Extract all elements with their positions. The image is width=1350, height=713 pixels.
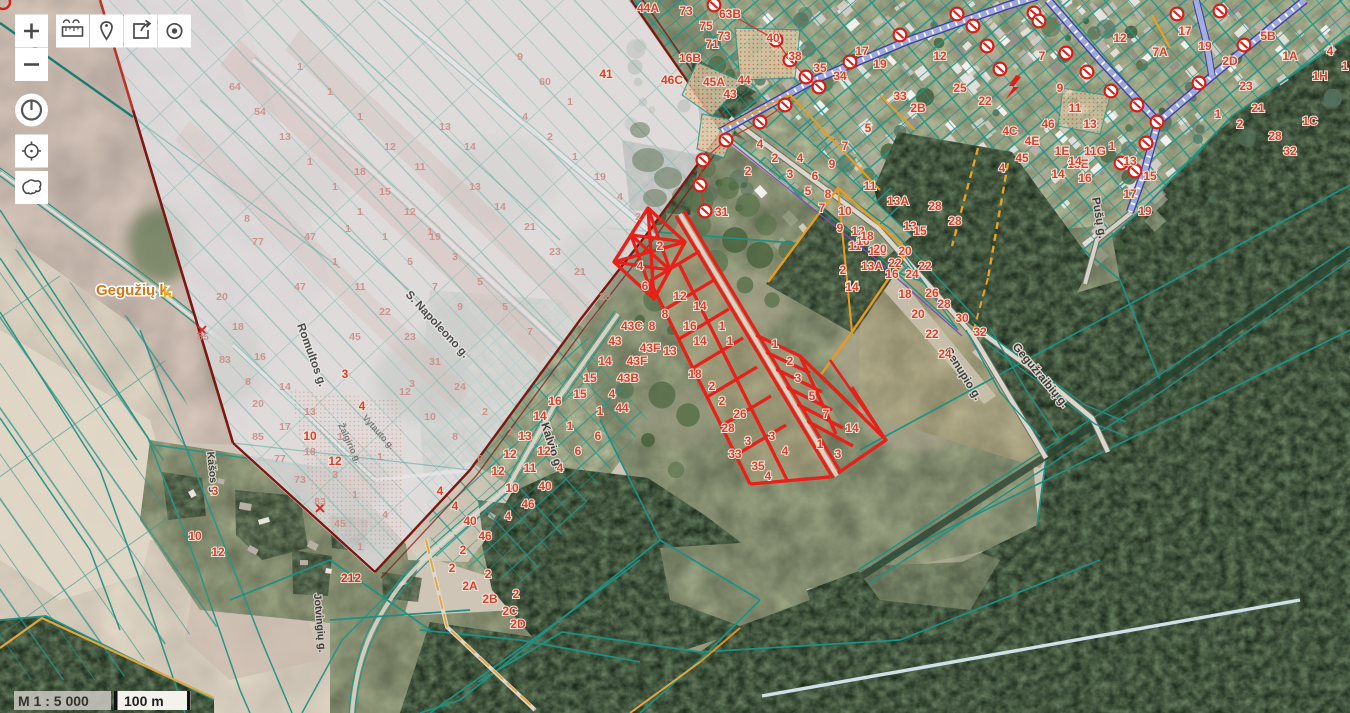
- svg-text:M 1 : 5 000: M 1 : 5 000: [18, 693, 89, 709]
- svg-text:100 m: 100 m: [124, 693, 164, 709]
